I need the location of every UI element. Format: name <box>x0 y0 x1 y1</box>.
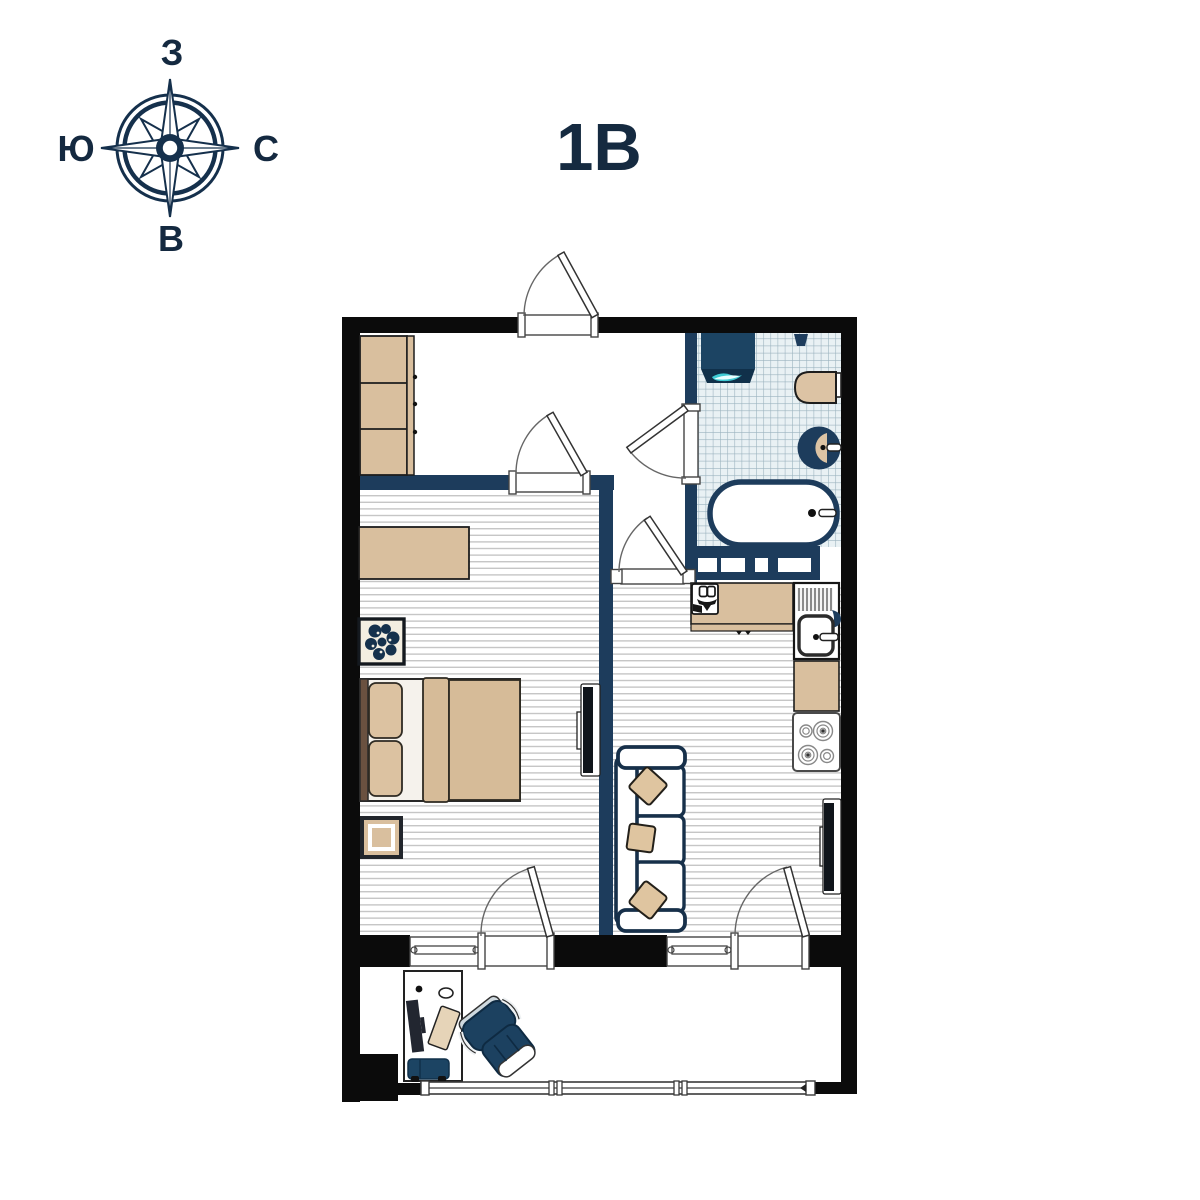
svg-text:1В: 1В <box>556 110 642 185</box>
svg-text:С: С <box>253 128 279 169</box>
svg-text:Ю: Ю <box>57 128 94 169</box>
svg-text:З: З <box>161 32 184 73</box>
svg-text:В: В <box>158 218 184 259</box>
